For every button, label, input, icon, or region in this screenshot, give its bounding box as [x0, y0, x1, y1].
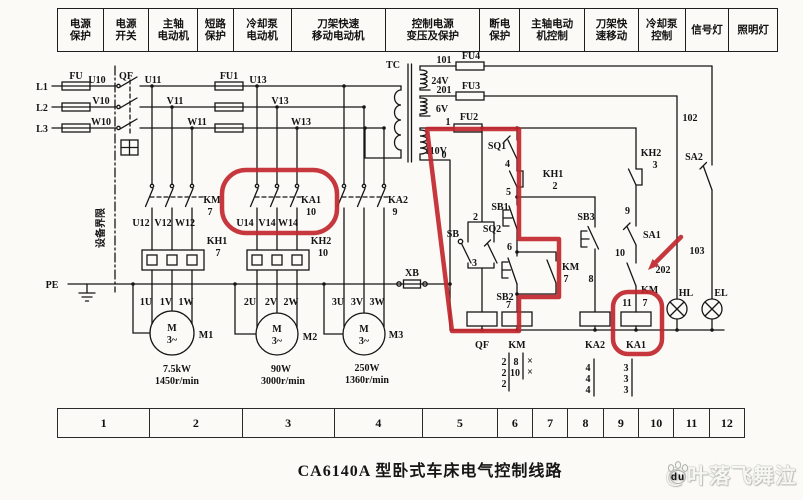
label-wire-102: 102	[683, 113, 698, 124]
label-2v: 2V	[265, 297, 278, 308]
label-wire-101: 101	[437, 55, 452, 66]
fuse-fu4	[456, 62, 484, 70]
ka1-table-3b: 3	[624, 374, 629, 385]
label-wire-6: 6	[507, 242, 512, 253]
label-kh2-heater-10: 10	[318, 248, 328, 259]
label-m1-letter: M	[167, 323, 177, 334]
label-equipment-boundary: 设备界限	[94, 207, 107, 248]
label-1u: 1U	[140, 297, 152, 308]
qf-breaker-symbol	[117, 77, 138, 155]
coils	[467, 312, 651, 326]
label-3u: 3U	[332, 297, 344, 308]
kh1-heater-box	[142, 250, 204, 270]
label-wire-7-coil: 7	[506, 300, 511, 311]
label-sb: SB	[447, 229, 460, 240]
label-1w: 1W	[179, 297, 194, 308]
label-hl: HL	[679, 288, 694, 299]
label-sq2: SQ2	[483, 224, 501, 235]
km-table-2c: 2	[502, 379, 507, 390]
label-kh1-heater-7: 7	[216, 248, 221, 259]
label-wire-202: 202	[656, 265, 671, 276]
strip-cell-7: 7	[533, 409, 568, 437]
label-wire-9: 9	[625, 206, 630, 217]
label-qf-switch: QF	[119, 71, 133, 82]
label-m2-letter: M	[272, 324, 282, 335]
strip-cell-1: 1	[58, 409, 150, 437]
label-v12: V12	[154, 218, 171, 229]
strip-cell-5: 5	[423, 409, 498, 437]
label-sa2: SA2	[685, 152, 703, 163]
label-sb2: SB2	[496, 292, 513, 303]
label-fu1: FU1	[220, 71, 238, 82]
label-km-selflock-7: 7	[564, 274, 569, 285]
label-1v: 1V	[160, 297, 173, 308]
label-fu4: FU4	[462, 51, 480, 62]
label-m3-power: 250W	[355, 363, 380, 374]
label-2u: 2U	[244, 297, 256, 308]
label-u14: U14	[236, 218, 253, 229]
label-l1: L1	[36, 82, 48, 93]
paw-du-text: du	[670, 472, 684, 483]
label-qf-coil: QF	[475, 340, 489, 351]
label-kh2-heater: KH2	[311, 236, 332, 247]
control-feed-lines	[420, 62, 712, 330]
label-km-contacts-7: 7	[208, 207, 213, 218]
label-wire-3: 3	[472, 258, 477, 269]
label-tc: TC	[386, 60, 400, 71]
label-ka2-contacts: KA2	[388, 195, 408, 206]
ka1-table-3a: 3	[624, 363, 629, 374]
label-kh2-contact-3: 3	[653, 160, 658, 171]
label-6v: 6V	[436, 104, 449, 115]
label-ka1-contacts: KA1	[301, 195, 321, 206]
km-table-8: 8	[514, 357, 519, 368]
ka2-table-4c: 4	[586, 385, 591, 396]
label-sq1: SQ1	[488, 141, 506, 152]
label-3v: 3V	[351, 297, 364, 308]
label-wire-2: 2	[473, 212, 478, 223]
label-wire-8: 8	[589, 274, 594, 285]
label-m3-speed: 1360r/min	[345, 375, 389, 386]
km-table-2a: 2	[502, 357, 507, 368]
label-v10: V10	[92, 96, 109, 107]
label-m2: M2	[303, 332, 317, 343]
label-wire-103: 103	[690, 246, 705, 257]
label-u13: U13	[249, 75, 266, 86]
label-m3-letter: M	[359, 324, 369, 335]
label-sb1: SB1	[491, 202, 508, 213]
control-main-branch	[502, 128, 595, 330]
label-l3: L3	[36, 124, 48, 135]
label-m1-power: 7.5kW	[163, 364, 191, 375]
ka1-coil-box	[621, 312, 651, 326]
label-m2-speed: 3000r/min	[261, 376, 305, 387]
label-m3-phase: 3~	[359, 336, 370, 347]
label-l2: L2	[36, 103, 48, 114]
label-fu2: FU2	[460, 112, 478, 123]
strip-cell-12: 12	[710, 409, 744, 437]
strip-cell-2: 2	[150, 409, 242, 437]
label-w12: W12	[175, 218, 195, 229]
label-v11: V11	[167, 96, 184, 107]
label-el: EL	[714, 288, 728, 299]
label-m1-speed: 1450r/min	[155, 376, 199, 387]
ka1-table-3c: 3	[624, 385, 629, 396]
label-fu: FU	[69, 71, 82, 82]
label-w14: W14	[278, 218, 298, 229]
label-km-selflock: KM	[562, 262, 580, 273]
strip-cell-8: 8	[568, 409, 603, 437]
label-2w: 2W	[284, 297, 299, 308]
label-w11: W11	[187, 117, 206, 128]
label-w10: W10	[91, 117, 111, 128]
km-table-10: 10	[510, 368, 520, 379]
column-number-strip: 123456789101112	[57, 408, 745, 438]
qf-coil-box	[467, 312, 497, 326]
label-wire-4: 4	[505, 159, 510, 170]
strip-cell-4: 4	[335, 409, 423, 437]
label-km-contacts: KM	[203, 195, 221, 206]
label-v13: V13	[271, 96, 288, 107]
label-pe: PE	[46, 280, 59, 291]
strip-cell-9: 9	[604, 409, 639, 437]
label-kh1-contact: KH1	[543, 169, 564, 180]
label-kh2-contact: KH2	[641, 148, 662, 159]
label-v14: V14	[258, 218, 275, 229]
label-u11: U11	[145, 75, 162, 86]
label-u12: U12	[132, 218, 149, 229]
transformer-tc	[365, 64, 430, 162]
fuse-fu3	[456, 92, 484, 100]
label-ka2-contacts-9: 9	[393, 207, 398, 218]
label-wire-7-ka1: 7	[643, 298, 648, 309]
strip-cell-6: 6	[498, 409, 533, 437]
watermark: du @叶落飞舞泣	[666, 460, 797, 490]
label-wire-5: 5	[506, 187, 511, 198]
label-m1-phase: 3~	[167, 335, 178, 346]
figure-title: CA6140A 型卧式车床电气控制线路	[180, 457, 680, 481]
label-sb3: SB3	[577, 212, 594, 223]
pe-ground	[68, 284, 450, 334]
kh2-heater-box	[247, 250, 309, 270]
label-wire-0: 0	[442, 150, 447, 161]
strip-cell-11: 11	[674, 409, 709, 437]
label-ka2-coil: KA2	[585, 340, 605, 351]
label-wire-1: 1	[446, 117, 451, 128]
label-m3: M3	[389, 330, 403, 341]
label-3w: 3W	[370, 297, 385, 308]
label-km-coil: KM	[508, 340, 526, 351]
strip-cell-3: 3	[243, 409, 335, 437]
ka2-table-4b: 4	[586, 374, 591, 385]
label-ka1-coil: KA1	[626, 340, 646, 351]
label-sa1: SA1	[643, 230, 661, 241]
label-m2-phase: 3~	[272, 336, 283, 347]
label-wire-11: 11	[622, 298, 631, 309]
paw-icon: du	[666, 460, 690, 486]
label-kh1-contact-2: 2	[553, 181, 558, 192]
label-ka1-contacts-10: 10	[306, 207, 316, 218]
ka2-table-4a: 4	[586, 363, 591, 374]
label-wire-10: 10	[615, 248, 625, 259]
km-table-x2: ×	[527, 367, 533, 378]
ka2-coil-box	[580, 312, 610, 326]
label-wire-201: 201	[437, 85, 452, 96]
label-m1: M1	[199, 330, 213, 341]
label-fu3: FU3	[462, 81, 480, 92]
km-table-x1: ×	[527, 356, 533, 367]
km-table-2b: 2	[502, 368, 507, 379]
label-kh1-heater: KH1	[207, 236, 228, 247]
label-xb: XB	[405, 268, 419, 279]
label-w13: W13	[291, 117, 311, 128]
strip-cell-10: 10	[639, 409, 674, 437]
label-m2-power: 90W	[271, 364, 291, 375]
label-u10: U10	[88, 75, 105, 86]
